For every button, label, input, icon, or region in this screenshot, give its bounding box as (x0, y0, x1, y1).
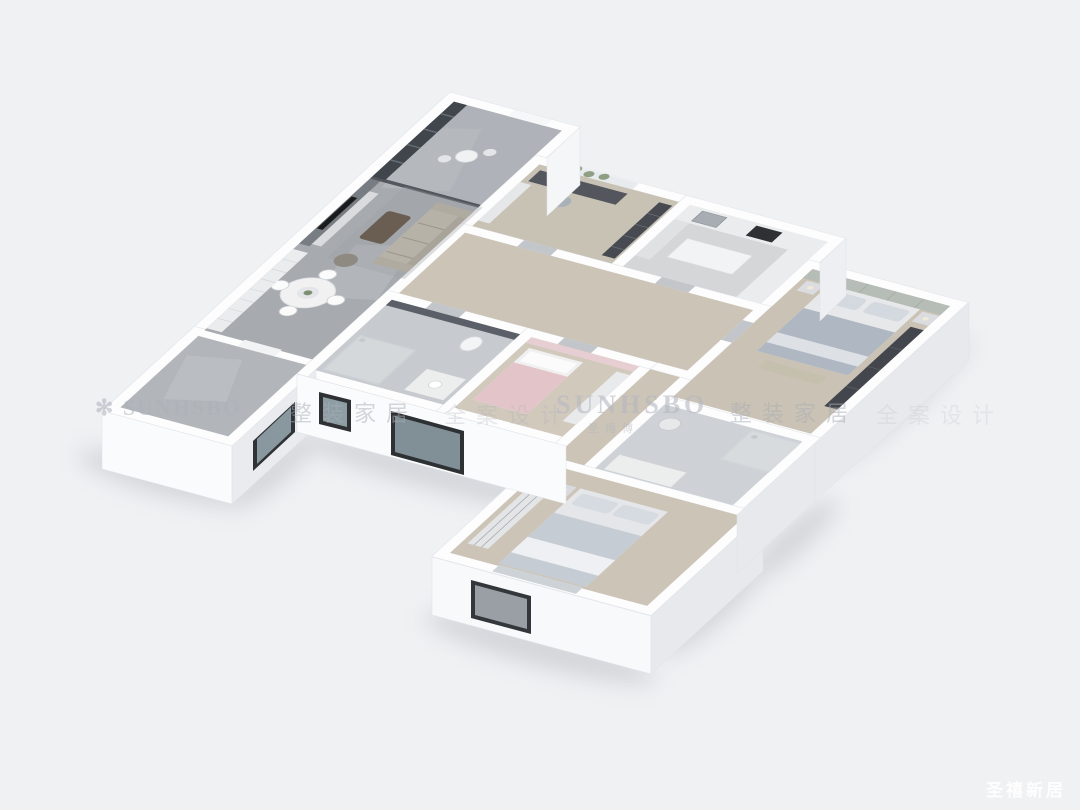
floorplan-3d-render (0, 0, 1080, 810)
floorplan-scene: ✻ SUNHSBO 整装家居 全案设计 SUNHSBO 圣禧博 整装家居 全案设… (0, 0, 1080, 810)
